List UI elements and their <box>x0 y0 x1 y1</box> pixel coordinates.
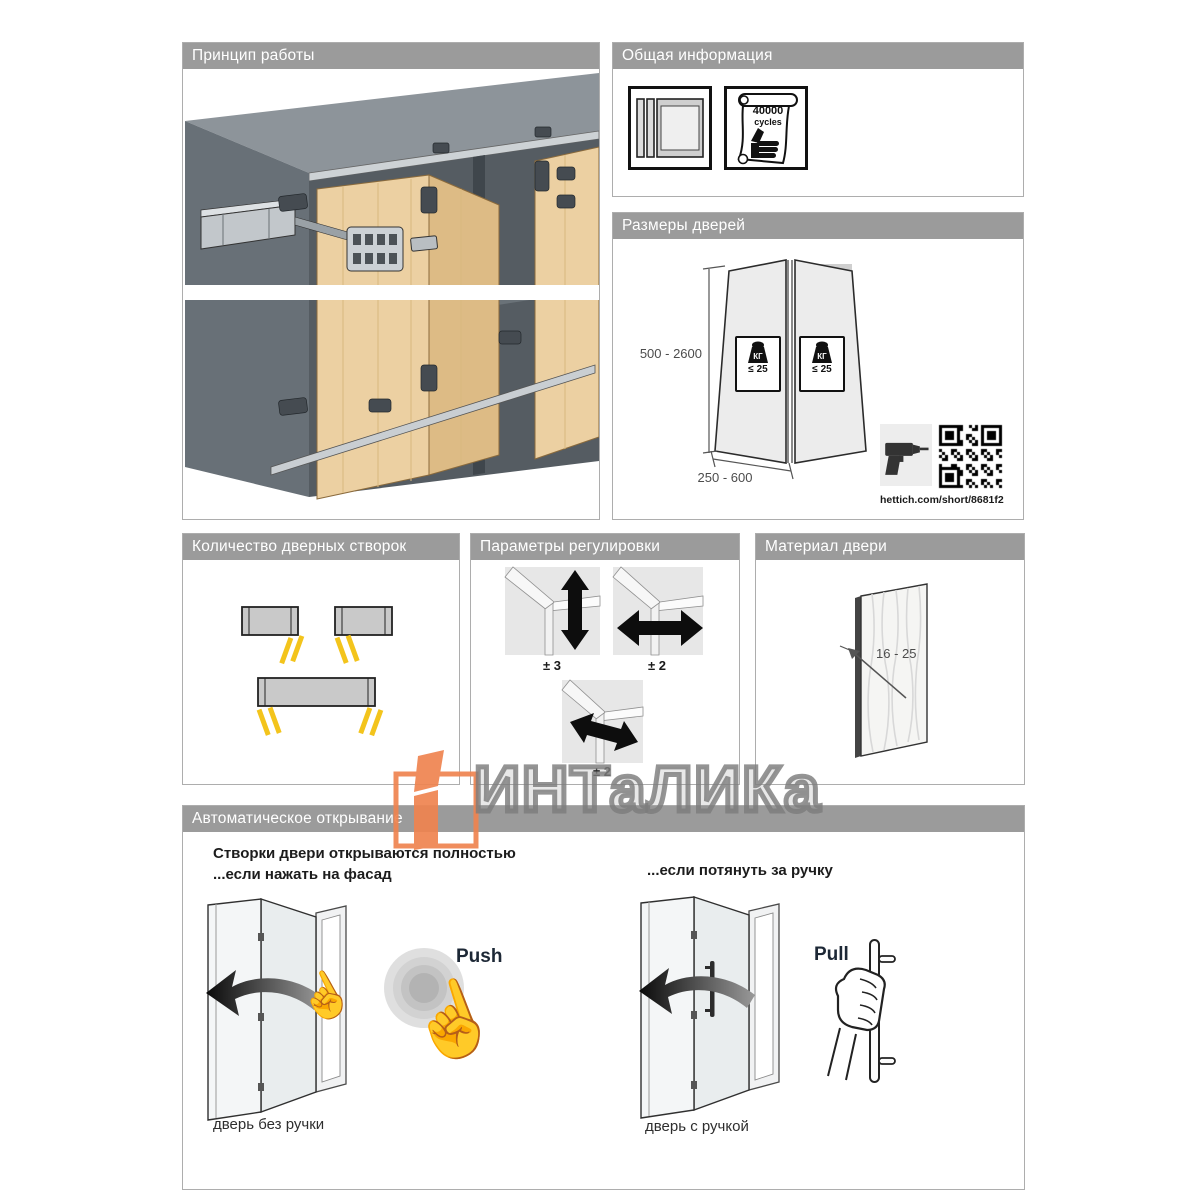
panel-adjustment-header: Параметры регулировки <box>471 534 739 560</box>
weight-limit-badge: КГ ≤ 25 <box>735 336 781 392</box>
panel-door-sizes-header: Размеры дверей <box>613 213 1023 239</box>
door-panel-back <box>694 897 749 1110</box>
adjustment-diagrams <box>471 560 739 784</box>
drill-icon <box>880 424 932 486</box>
cabinet-left-side <box>185 121 309 497</box>
auto-open-pull-intro: ...если потянуть за ручку <box>647 862 833 879</box>
door-height-range: 500 - 2600 <box>626 346 702 361</box>
door-thickness-value: 16 - 25 <box>876 646 916 661</box>
door-edge <box>855 596 861 758</box>
adjust-vertical-diagram <box>505 567 600 655</box>
qr-link: hettich.com/short/8681f2 <box>880 494 1004 506</box>
adjust-horizontal-diagram <box>613 567 703 655</box>
door-section-glyph <box>631 89 709 167</box>
cycles-count: 40000 <box>740 105 796 117</box>
cycles-scroll-glyph <box>727 89 805 167</box>
cabinet-illustration <box>183 69 599 520</box>
pull-caption: дверь с ручкой <box>645 1118 749 1135</box>
40000-cycles-scroll-icon <box>724 86 808 170</box>
push-label: Push <box>456 946 502 968</box>
door-count-diagram <box>183 560 459 784</box>
panel-general-header: Общая информация <box>613 43 1023 69</box>
adjust-depth-diagram <box>562 680 643 763</box>
folding-door-pull-illustration <box>636 891 788 1121</box>
panel-adjustment: Параметры регулировки <box>470 533 740 785</box>
weight-unit-label: КГ <box>817 352 827 361</box>
panel-door-count: Количество дверных створок <box>182 533 460 785</box>
panel-door-material-header: Материал двери <box>756 534 1024 560</box>
page-split-band <box>183 285 599 300</box>
cycles-word: cycles <box>740 117 796 127</box>
auto-open-intro-line2: ...если нажать на фасад <box>213 866 392 883</box>
hand-on-handle-illustration <box>824 930 934 1100</box>
qr-code <box>938 424 1004 490</box>
weight-limit-badge: КГ ≤ 25 <box>799 336 845 392</box>
weight-limit-value: ≤ 25 <box>748 364 767 375</box>
panel-door-count-header: Количество дверных створок <box>183 534 459 560</box>
auto-open-intro-line1: Створки двери открываются полностью <box>213 845 516 862</box>
weight-kg-icon: КГ <box>743 341 773 363</box>
adjust-horizontal-value: ± 2 <box>648 658 666 673</box>
panel-principle-header: Принцип работы <box>183 43 599 69</box>
door-material-diagram <box>756 560 1024 784</box>
weight-unit-label: КГ <box>753 352 763 361</box>
weight-limit-value: ≤ 25 <box>812 364 831 375</box>
folding-door-section-icon <box>628 86 712 170</box>
door-top-views <box>242 607 392 706</box>
push-caption: дверь без ручки <box>213 1116 324 1133</box>
adjust-depth-value: ± 2 <box>593 764 611 779</box>
door-width-range: 250 - 600 <box>690 470 760 485</box>
catalog-page: Принцип работы <box>0 0 1200 1200</box>
drill-glyph <box>880 424 932 486</box>
panel-auto-opening-header: Автоматическое открывание <box>183 806 1024 832</box>
weight-kg-icon: КГ <box>807 341 837 363</box>
panel-principle: Принцип работы <box>182 42 600 520</box>
adjust-vertical-value: ± 3 <box>543 658 561 673</box>
